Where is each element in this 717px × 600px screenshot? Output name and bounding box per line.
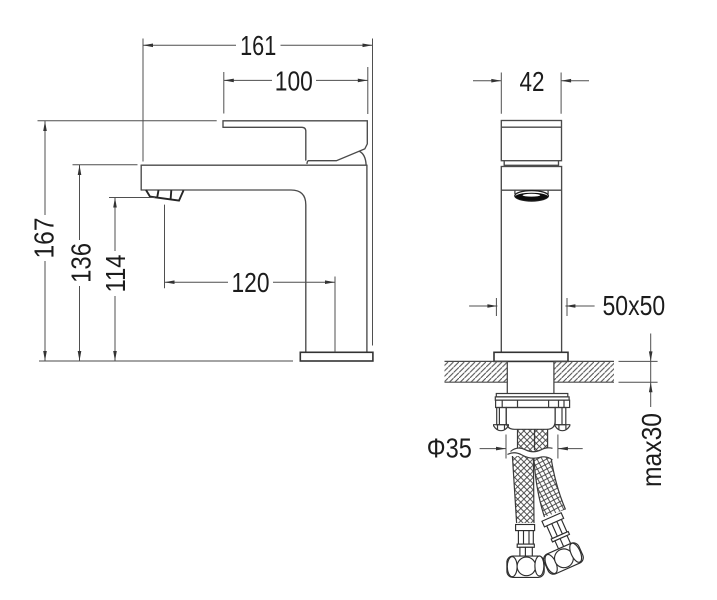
svg-text:50x50: 50x50 bbox=[603, 290, 666, 321]
svg-text:136: 136 bbox=[65, 243, 96, 283]
svg-text:max30: max30 bbox=[636, 413, 667, 487]
svg-text:114: 114 bbox=[100, 255, 131, 293]
svg-text:167: 167 bbox=[29, 218, 60, 259]
svg-text:42: 42 bbox=[520, 66, 545, 97]
svg-text:100: 100 bbox=[275, 66, 313, 97]
svg-text:Φ35: Φ35 bbox=[427, 433, 472, 464]
svg-text:161: 161 bbox=[240, 30, 276, 61]
svg-text:120: 120 bbox=[232, 267, 270, 298]
